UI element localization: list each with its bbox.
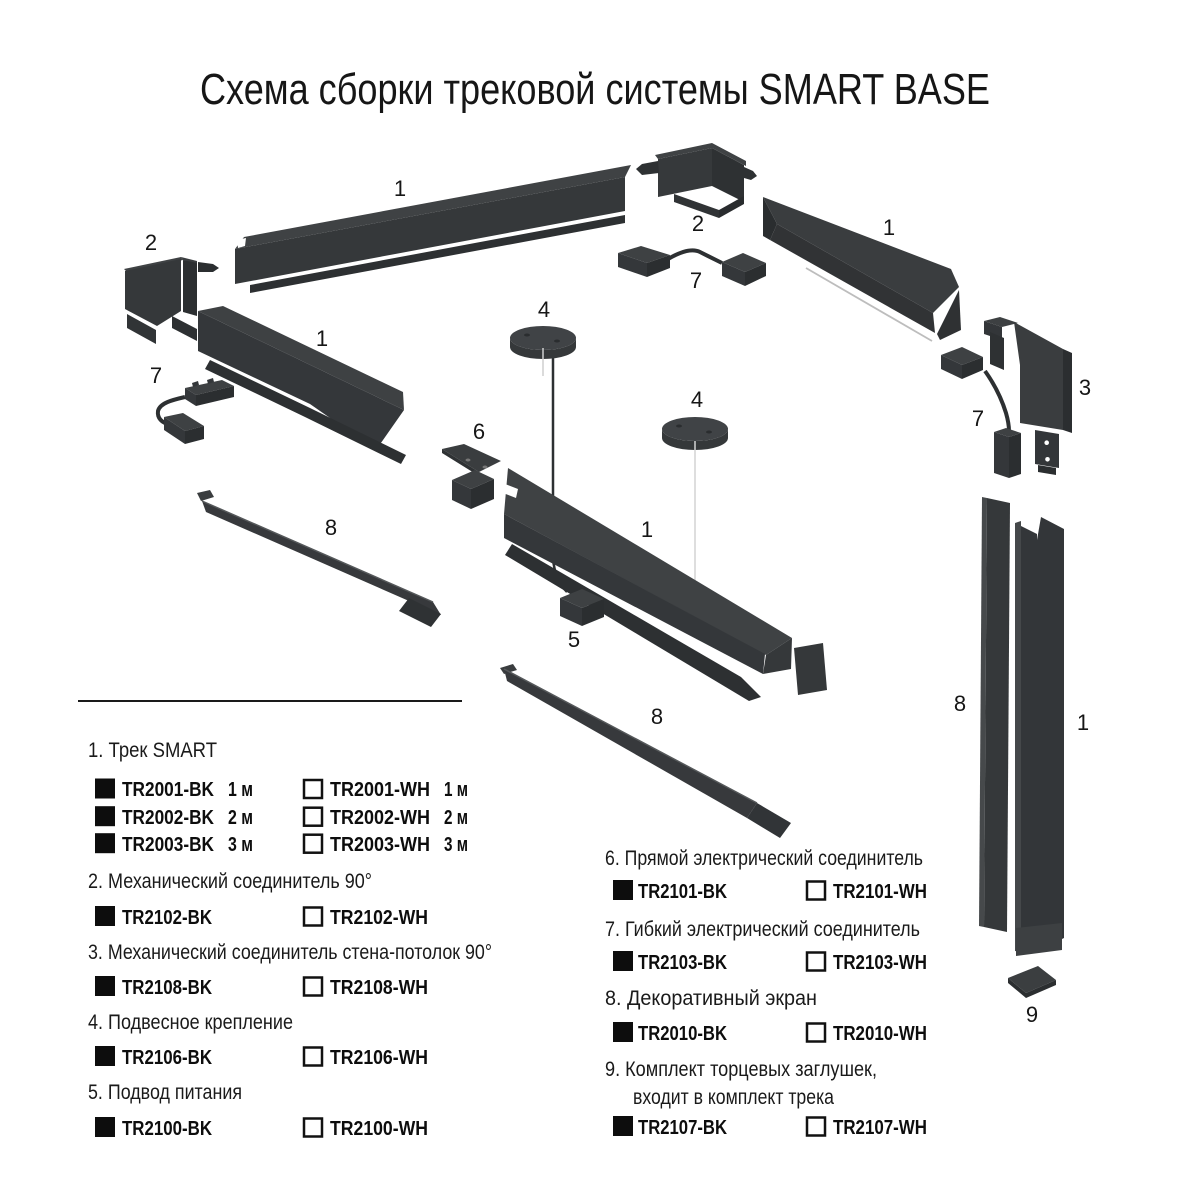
svg-text:TR2101-WH: TR2101-WH: [833, 881, 927, 903]
svg-text:TR2001-WH: TR2001-WH: [330, 779, 430, 801]
svg-text:TR2102-WH: TR2102-WH: [330, 907, 428, 929]
svg-text:TR2001-BK: TR2001-BK: [122, 779, 214, 801]
svg-text:TR2002-WH: TR2002-WH: [330, 807, 430, 829]
svg-text:5: 5: [568, 627, 580, 652]
svg-text:8: 8: [325, 515, 337, 540]
svg-text:3 м: 3 м: [444, 834, 468, 856]
svg-text:1: 1: [883, 215, 895, 240]
svg-text:TR2108-BK: TR2108-BK: [122, 977, 212, 999]
svg-text:TR2102-BK: TR2102-BK: [122, 907, 212, 929]
svg-text:1 м: 1 м: [228, 779, 253, 801]
svg-text:6: 6: [473, 419, 485, 444]
svg-text:7: 7: [972, 406, 984, 431]
svg-text:TR2003-WH: TR2003-WH: [330, 834, 430, 856]
svg-text:TR2103-BK: TR2103-BK: [638, 952, 727, 974]
svg-text:7: 7: [150, 363, 162, 388]
svg-text:9. Комплект торцевых заглушек,: 9. Комплект торцевых заглушек,: [605, 1058, 877, 1081]
svg-text:9: 9: [1026, 1002, 1038, 1027]
svg-text:1: 1: [1077, 710, 1089, 735]
svg-text:Схема сборки трековой системы: Схема сборки трековой системы SMART BASE: [200, 65, 990, 114]
svg-text:1 м: 1 м: [444, 779, 468, 801]
svg-text:3 м: 3 м: [228, 834, 253, 856]
svg-text:TR2106-BK: TR2106-BK: [122, 1047, 212, 1069]
svg-text:8: 8: [651, 704, 663, 729]
svg-text:TR2100-BK: TR2100-BK: [122, 1118, 212, 1140]
svg-text:2. Механический соединитель 90: 2. Механический соединитель 90°: [88, 870, 372, 893]
svg-text:4: 4: [691, 387, 703, 412]
svg-text:TR2108-WH: TR2108-WH: [330, 977, 428, 999]
svg-text:TR2003-BK: TR2003-BK: [122, 834, 214, 856]
svg-text:3. Механический соединитель ст: 3. Механический соединитель стена-потоло…: [88, 941, 492, 964]
svg-text:TR2100-WH: TR2100-WH: [330, 1118, 428, 1140]
svg-text:8. Декоративный экран: 8. Декоративный экран: [605, 987, 817, 1010]
svg-text:2 м: 2 м: [444, 807, 468, 829]
svg-text:3: 3: [1079, 375, 1091, 400]
svg-text:1: 1: [641, 517, 653, 542]
svg-text:1: 1: [394, 176, 406, 201]
svg-text:TR2106-WH: TR2106-WH: [330, 1047, 428, 1069]
svg-text:6. Прямой электрический соедин: 6. Прямой электрический соединитель: [605, 847, 923, 870]
svg-text:TR2010-WH: TR2010-WH: [833, 1023, 927, 1045]
svg-text:2: 2: [145, 230, 157, 255]
svg-text:7. Гибкий электрический соедин: 7. Гибкий электрический соединитель: [605, 918, 920, 941]
svg-text:TR2107-BK: TR2107-BK: [638, 1117, 727, 1139]
svg-text:8: 8: [954, 691, 966, 716]
svg-text:TR2103-WH: TR2103-WH: [833, 952, 927, 974]
svg-text:1: 1: [316, 326, 328, 351]
svg-text:входит в комплект трека: входит в комплект трека: [633, 1086, 834, 1109]
svg-text:2: 2: [692, 211, 704, 236]
svg-text:1. Трек SMART: 1. Трек SMART: [88, 739, 217, 762]
svg-text:TR2101-BK: TR2101-BK: [638, 881, 727, 903]
svg-text:TR2002-BK: TR2002-BK: [122, 807, 214, 829]
svg-text:2 м: 2 м: [228, 807, 253, 829]
svg-text:TR2010-BK: TR2010-BK: [638, 1023, 727, 1045]
svg-text:4. Подвесное крепление: 4. Подвесное крепление: [88, 1011, 293, 1034]
svg-text:4: 4: [538, 297, 550, 322]
svg-text:TR2107-WH: TR2107-WH: [833, 1117, 927, 1139]
svg-text:5. Подвод питания: 5. Подвод питания: [88, 1081, 242, 1104]
svg-text:7: 7: [690, 268, 702, 293]
